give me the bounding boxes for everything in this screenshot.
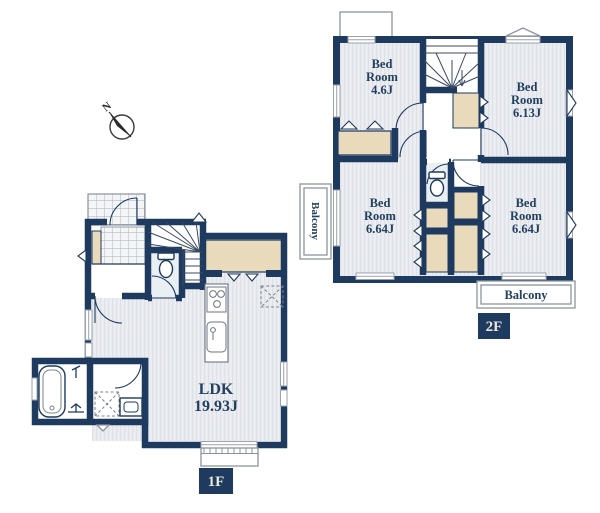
- floor-badge-1f-label: 1F: [208, 474, 225, 490]
- kitchen-island: [205, 284, 228, 362]
- porch-step: [201, 448, 258, 466]
- closet-right-lower: [454, 225, 478, 272]
- floor-1f-plan: LDK 19.93J 1F: [32, 194, 287, 494]
- label-bedroom664l-2: Room: [364, 209, 397, 223]
- label-bedroom46-2: Room: [366, 70, 399, 84]
- closet-right-upper: [454, 192, 478, 219]
- toilet-icon-1f: [158, 253, 174, 278]
- compass-north-label: N: [100, 100, 114, 114]
- label-bedroom664r-1: Bed: [516, 196, 537, 210]
- label-bedroom664l-3: 6.64J: [366, 222, 394, 236]
- roof-overhang: [340, 12, 392, 38]
- floor-plan-drawing: Bed Room 4.6J Bed Room 6.13J Bed Room 6.…: [0, 0, 600, 513]
- label-bedroom613-3: 6.13J: [513, 106, 541, 120]
- label-bedroom613-1: Bed: [517, 80, 538, 94]
- balcony-bottom: Balcony: [477, 281, 575, 308]
- pantry-wall-stub-right: [266, 270, 283, 277]
- compass-icon: N: [100, 100, 134, 139]
- bathroom-block: [35, 361, 145, 431]
- label-bedroom664r-3: 6.64J: [512, 222, 540, 236]
- label-bedroom664r-2: Room: [510, 209, 543, 223]
- pantry-wall-stub-left: [205, 270, 222, 277]
- label-bedroom46-1: Bed: [372, 57, 393, 71]
- shoe-cabinet: [92, 231, 101, 264]
- ldk-label-1: LDK: [199, 381, 234, 398]
- balcony-bottom-label: Balcony: [504, 288, 548, 302]
- label-bedroom664l-1: Bed: [370, 196, 391, 210]
- vanity-sink-icon: [120, 398, 142, 416]
- floor-badge-2f-label: 2F: [486, 319, 503, 335]
- toilet-icon-2f: [429, 172, 445, 196]
- pantry-closet-1f: [205, 240, 283, 272]
- stair-top-vent-mark: [192, 213, 206, 222]
- balcony-left: Balcony: [300, 184, 331, 259]
- balcony-left-label: Balcony: [309, 202, 321, 240]
- closet-bedroom46: [338, 131, 391, 155]
- closet-hall-2f: [453, 93, 479, 128]
- floor-plan-canvas: Bed Room 4.6J Bed Room 6.13J Bed Room 6.…: [0, 0, 600, 513]
- floor-2f-plan: Bed Room 4.6J Bed Room 6.13J Bed Room 6.…: [300, 12, 576, 339]
- ldk-label-2: 19.93J: [194, 398, 238, 415]
- label-bedroom613-2: Room: [511, 93, 544, 107]
- genkan-tile: [101, 227, 148, 264]
- closet-left-lower: [426, 234, 448, 272]
- closet-left-upper: [426, 208, 448, 228]
- label-bedroom46-3: 4.6J: [371, 83, 393, 97]
- bathtub-icon: [39, 366, 65, 417]
